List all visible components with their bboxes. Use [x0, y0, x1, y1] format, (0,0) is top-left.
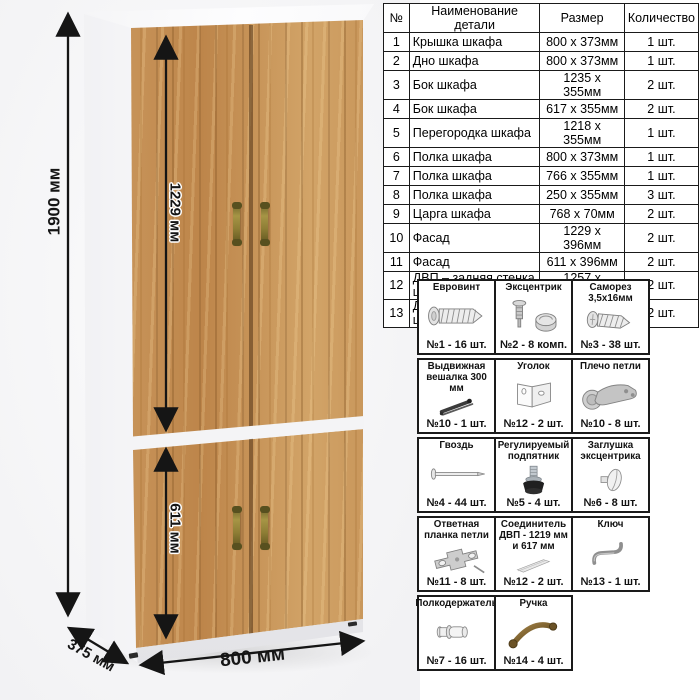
part-name: Крышка шкафа	[409, 33, 540, 52]
part-num: 12	[384, 272, 410, 300]
hardware-count: №7 - 16 шт.	[426, 655, 486, 667]
hardware-cell-euroscrew: Евровинт №1 - 16 шт.	[417, 279, 496, 355]
table-row: 4Бок шкафа617 х 355мм2 шт.	[384, 100, 699, 119]
assembly-spec-sheet: 1900 мм 1229 мм 611 мм 800 мм 375 мм № Н…	[0, 0, 700, 700]
part-name: Бок шкафа	[409, 100, 540, 119]
table-row: 5Перегородка шкафа1218 х 355мм1 шт.	[384, 119, 699, 148]
part-num: 11	[384, 253, 410, 272]
wardrobe-drawing: 1900 мм 1229 мм 611 мм 800 мм 375 мм	[0, 0, 420, 700]
hardware-cell-cam-lock: Эксцентрик №2 - 8 комп.	[494, 279, 573, 355]
dimension-height-label: 1900 мм	[46, 162, 63, 242]
part-size: 1235 х 355мм	[540, 71, 624, 100]
part-name: Перегородка шкафа	[409, 119, 540, 148]
hardware-cell-pullout-hanger: Выдвижная вешалка 300 мм №10 - 1 шт.	[417, 358, 496, 434]
hardware-row: Выдвижная вешалка 300 мм №10 - 1 шт. Уго…	[417, 358, 656, 434]
hardware-count: №11 - 8 шт.	[427, 576, 487, 588]
hardware-title: Выдвижная вешалка 300 мм	[420, 362, 493, 394]
hardware-cell-hdf-connector: Соединитель ДВП - 1219 мм и 617 мм №12 -…	[494, 516, 573, 592]
table-row: 9Царга шкафа768 х 70мм2 шт.	[384, 205, 699, 224]
hinge-plate-icon	[424, 542, 490, 576]
part-num: 9	[384, 205, 410, 224]
hardware-cell-corner-bracket: Уголок №12 - 2 шт.	[494, 358, 573, 434]
part-num: 6	[384, 148, 410, 167]
dimension-lower-door-label: 611 мм	[168, 489, 183, 569]
shelf-pin-icon	[426, 610, 488, 655]
hardware-title: Ручка	[519, 599, 547, 610]
hardware-count: №5 - 4 шт.	[507, 497, 561, 509]
handle-icon	[501, 610, 567, 655]
part-qty: 2 шт.	[624, 205, 698, 224]
part-size: 768 х 70мм	[540, 205, 624, 224]
table-row: 2Дно шкафа800 х 373мм1 шт.	[384, 52, 699, 71]
part-qty: 2 шт.	[624, 224, 698, 253]
hardware-title: Ключ	[598, 520, 624, 531]
hardware-cell-adjustable-foot: Регулируемый подпятник №5 - 4 шт.	[494, 437, 573, 513]
hardware-title: Саморез 3,5х16мм	[574, 283, 647, 305]
hex-key-icon	[581, 531, 641, 576]
cam-lock-icon	[501, 294, 567, 339]
part-size: 800 х 373мм	[540, 148, 624, 167]
part-num: 13	[384, 300, 410, 328]
hardware-title: Полкодержатель	[415, 599, 497, 610]
table-row: 1Крышка шкафа800 х 373мм1 шт.	[384, 33, 699, 52]
part-qty: 1 шт.	[624, 148, 698, 167]
hardware-grid: Евровинт №1 - 16 шт. Эксцентрик	[417, 279, 656, 674]
part-name: Бок шкафа	[409, 71, 540, 100]
hardware-count: №13 - 1 шт.	[580, 576, 640, 588]
hardware-count: №10 - 8 шт.	[580, 418, 640, 430]
part-num: 5	[384, 119, 410, 148]
hardware-title: Гвоздь	[439, 441, 473, 452]
part-qty: 1 шт.	[624, 119, 698, 148]
hardware-cell-hinge-arm: Плечо петли №10 - 8 шт.	[571, 358, 650, 434]
hardware-cell-shelf-pin: Полкодержатель №7 - 16 шт.	[417, 595, 496, 671]
part-name: Дно шкафа	[409, 52, 540, 71]
table-row: 8Полка шкафа250 х 355мм3 шт.	[384, 186, 699, 205]
part-size: 766 х 355мм	[540, 167, 624, 186]
hardware-cell-cam-cap: Заглушка эксцентрика №6 - 8 шт.	[571, 437, 650, 513]
hdf-connector-icon	[501, 552, 567, 576]
header-num: №	[384, 4, 410, 33]
dimension-arrows	[0, 0, 420, 700]
hardware-title: Заглушка эксцентрика	[574, 441, 647, 463]
part-qty: 1 шт.	[624, 33, 698, 52]
corner-bracket-icon	[501, 373, 567, 418]
part-qty: 1 шт.	[624, 52, 698, 71]
part-name: Полка шкафа	[409, 167, 540, 186]
part-name: Фасад	[409, 253, 540, 272]
screw-icon	[578, 305, 644, 339]
dimension-upper-door-label: 1229 мм	[168, 173, 183, 253]
part-size: 617 х 355мм	[540, 100, 624, 119]
hardware-count: №12 - 2 шт.	[503, 576, 563, 588]
hardware-count: №2 - 8 комп.	[500, 339, 567, 351]
table-row: 6Полка шкафа800 х 373мм1 шт.	[384, 148, 699, 167]
part-size: 250 х 355мм	[540, 186, 624, 205]
part-num: 8	[384, 186, 410, 205]
part-size: 800 х 373мм	[540, 33, 624, 52]
header-qty: Количество	[624, 4, 698, 33]
part-qty: 2 шт.	[624, 100, 698, 119]
hardware-count: №10 - 1 шт.	[426, 418, 486, 430]
adjustable-foot-icon	[506, 463, 562, 497]
part-num: 4	[384, 100, 410, 119]
part-num: 2	[384, 52, 410, 71]
header-name: Наименование детали	[409, 4, 540, 33]
part-name: Полка шкафа	[409, 148, 540, 167]
hardware-count: №14 - 4 шт.	[503, 655, 563, 667]
nail-icon	[422, 452, 492, 497]
hardware-cell-hinge-plate: Ответная планка петли №11 - 8 шт.	[417, 516, 496, 592]
hardware-row: Полкодержатель №7 - 16 шт. Ручка	[417, 595, 656, 671]
hardware-row: Гвоздь №4 - 44 шт. Регулируемый подпятни…	[417, 437, 656, 513]
hardware-count: №1 - 16 шт.	[426, 339, 486, 351]
hinge-arm-icon	[577, 373, 645, 418]
hardware-row: Ответная планка петли №11 - 8 шт.	[417, 516, 656, 592]
header-size: Размер	[540, 4, 624, 33]
euroscrew-icon	[422, 294, 492, 339]
hardware-title: Соединитель ДВП - 1219 мм и 617 мм	[497, 520, 570, 552]
part-size: 611 х 396мм	[540, 253, 624, 272]
hardware-count: №12 - 2 шт.	[503, 418, 563, 430]
parts-table-header-row: № Наименование детали Размер Количество	[384, 4, 699, 33]
part-num: 1	[384, 33, 410, 52]
pullout-hanger-icon	[422, 394, 492, 418]
hardware-cell-screw: Саморез 3,5х16мм №3 - 38 шт.	[571, 279, 650, 355]
hardware-title: Плечо петли	[580, 362, 641, 373]
part-num: 3	[384, 71, 410, 100]
hardware-title: Эксцентрик	[505, 283, 561, 294]
part-name: Фасад	[409, 224, 540, 253]
part-name: Полка шкафа	[409, 186, 540, 205]
table-row: 3Бок шкафа1235 х 355мм2 шт.	[384, 71, 699, 100]
table-row: 11Фасад611 х 396мм2 шт.	[384, 253, 699, 272]
hardware-cell-handle: Ручка	[494, 595, 573, 671]
part-size: 800 х 373мм	[540, 52, 624, 71]
table-row: 10Фасад1229 х 396мм2 шт.	[384, 224, 699, 253]
part-qty: 3 шт.	[624, 186, 698, 205]
hardware-title: Регулируемый подпятник	[497, 441, 570, 463]
hardware-count: №3 - 38 шт.	[580, 339, 640, 351]
part-num: 10	[384, 224, 410, 253]
hardware-title: Ответная планка петли	[420, 520, 493, 542]
hardware-title: Уголок	[517, 362, 549, 373]
hardware-title: Евровинт	[433, 283, 480, 294]
part-qty: 2 шт.	[624, 253, 698, 272]
part-size: 1229 х 396мм	[540, 224, 624, 253]
part-num: 7	[384, 167, 410, 186]
hardware-count: №6 - 8 шт.	[584, 497, 638, 509]
part-name: Царга шкафа	[409, 205, 540, 224]
cam-cap-icon	[581, 463, 641, 497]
table-row: 7Полка шкафа766 х 355мм1 шт.	[384, 167, 699, 186]
hardware-row: Евровинт №1 - 16 шт. Эксцентрик	[417, 279, 656, 355]
hardware-count: №4 - 44 шт.	[426, 497, 486, 509]
part-qty: 1 шт.	[624, 167, 698, 186]
hardware-cell-nail: Гвоздь №4 - 44 шт.	[417, 437, 496, 513]
hardware-cell-hex-key: Ключ №13 - 1 шт.	[571, 516, 650, 592]
part-size: 1218 х 355мм	[540, 119, 624, 148]
part-qty: 2 шт.	[624, 71, 698, 100]
